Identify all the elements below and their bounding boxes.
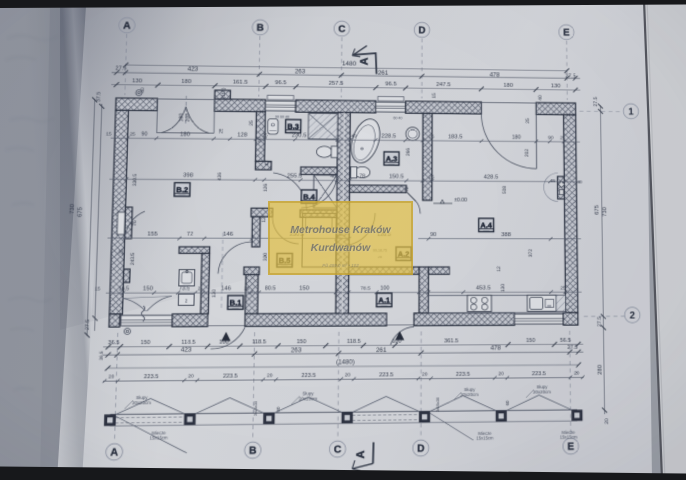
svg-text:146: 146 xyxy=(221,286,232,292)
svg-text:——: —— xyxy=(381,303,388,307)
svg-text:60: 60 xyxy=(257,137,262,142)
svg-text:255.5: 255.5 xyxy=(287,174,303,180)
svg-text:78: 78 xyxy=(359,174,365,180)
svg-text:25: 25 xyxy=(249,120,255,126)
svg-text:15x15cm: 15x15cm xyxy=(476,435,494,440)
svg-text:223.5: 223.5 xyxy=(223,373,238,379)
svg-text:——: —— xyxy=(483,228,490,232)
svg-text:20: 20 xyxy=(498,371,504,377)
svg-text:72: 72 xyxy=(187,232,193,238)
svg-text:3x15x30: 3x15x30 xyxy=(436,397,440,412)
svg-text:155: 155 xyxy=(147,232,158,238)
svg-text:223.5: 223.5 xyxy=(456,372,470,378)
svg-text:202: 202 xyxy=(524,149,530,157)
svg-text:730: 730 xyxy=(602,206,608,216)
svg-text:25: 25 xyxy=(429,174,435,180)
svg-text:130: 130 xyxy=(211,289,217,298)
svg-text:25: 25 xyxy=(525,118,531,124)
svg-text:118.5: 118.5 xyxy=(252,339,266,345)
svg-text:330.5: 330.5 xyxy=(132,174,139,187)
svg-text:90: 90 xyxy=(430,232,436,238)
svg-text:B: B xyxy=(256,23,263,34)
svg-text:20: 20 xyxy=(574,371,580,377)
svg-text:20x20cm: 20x20cm xyxy=(461,392,479,397)
svg-text:675: 675 xyxy=(77,206,84,217)
svg-text:228.5: 228.5 xyxy=(381,134,396,140)
svg-text:230.5: 230.5 xyxy=(292,133,308,139)
svg-text:90 60 40: 90 60 40 xyxy=(275,115,289,119)
svg-text:257.5: 257.5 xyxy=(329,81,344,87)
svg-text:25: 25 xyxy=(130,132,136,138)
svg-text:20x20cm: 20x20cm xyxy=(533,389,551,394)
svg-text:40: 40 xyxy=(351,134,357,140)
svg-text:263: 263 xyxy=(291,347,302,354)
svg-text:398: 398 xyxy=(183,173,194,179)
svg-text:243.5: 243.5 xyxy=(130,252,137,265)
svg-text:361.5: 361.5 xyxy=(444,338,458,344)
svg-text:C: C xyxy=(334,445,342,456)
svg-text:20: 20 xyxy=(345,372,351,378)
svg-text:E: E xyxy=(563,28,570,38)
svg-text:78.5: 78.5 xyxy=(360,286,370,292)
svg-text:25: 25 xyxy=(560,286,566,291)
svg-text:20: 20 xyxy=(422,372,428,378)
svg-text:372: 372 xyxy=(528,249,534,257)
svg-text:126: 126 xyxy=(263,183,269,191)
svg-text:16.5: 16.5 xyxy=(118,286,129,292)
svg-text:1: 1 xyxy=(628,107,634,117)
svg-text:150: 150 xyxy=(526,338,535,344)
svg-text:25: 25 xyxy=(244,286,250,291)
svg-text:27.5: 27.5 xyxy=(597,316,603,326)
svg-text:128: 128 xyxy=(237,133,248,139)
svg-text:161.5: 161.5 xyxy=(233,80,249,86)
svg-text:3x15x30: 3x15x30 xyxy=(254,401,258,416)
svg-text:150.5: 150.5 xyxy=(389,174,404,180)
svg-text:90: 90 xyxy=(141,132,147,138)
svg-text:25: 25 xyxy=(560,135,565,140)
svg-text:130: 130 xyxy=(132,78,143,84)
svg-text:2: 2 xyxy=(630,311,636,322)
svg-text:——: —— xyxy=(388,162,395,166)
svg-text:A: A xyxy=(355,450,367,458)
svg-text:——: —— xyxy=(179,193,186,197)
svg-text:180: 180 xyxy=(503,83,513,89)
svg-text:15x15cm: 15x15cm xyxy=(560,435,578,440)
svg-text:37.5: 37.5 xyxy=(96,92,102,102)
svg-text:266: 266 xyxy=(406,148,412,156)
svg-text:20: 20 xyxy=(267,373,273,379)
svg-text:A: A xyxy=(123,21,131,32)
svg-text:180: 180 xyxy=(181,79,192,85)
svg-text:36.5: 36.5 xyxy=(108,340,120,346)
svg-text:25: 25 xyxy=(262,133,268,139)
svg-text:36.5: 36.5 xyxy=(99,351,105,361)
svg-text:73.5: 73.5 xyxy=(179,286,190,292)
svg-text:247.5: 247.5 xyxy=(436,82,451,88)
svg-text:423: 423 xyxy=(181,347,193,354)
svg-text:146: 146 xyxy=(223,232,234,238)
svg-text:118.5: 118.5 xyxy=(347,339,361,345)
svg-text:25: 25 xyxy=(119,249,125,255)
svg-text:96.5: 96.5 xyxy=(385,82,397,88)
svg-text:388: 388 xyxy=(501,232,511,238)
svg-text:(1480): (1480) xyxy=(336,359,354,366)
svg-text:A: A xyxy=(110,447,119,459)
svg-text:223.5: 223.5 xyxy=(379,372,393,378)
svg-text:100: 100 xyxy=(219,339,229,345)
svg-text:150: 150 xyxy=(140,340,150,346)
svg-text:20: 20 xyxy=(108,374,114,380)
svg-text:15: 15 xyxy=(432,93,438,99)
svg-text:150: 150 xyxy=(299,286,310,292)
svg-text:20: 20 xyxy=(604,418,610,424)
svg-text:100: 100 xyxy=(392,338,402,344)
svg-text:E: E xyxy=(567,442,574,453)
svg-text:40: 40 xyxy=(140,87,146,93)
svg-text:40: 40 xyxy=(577,180,582,185)
svg-text:118.5: 118.5 xyxy=(181,340,195,346)
svg-text:27.5: 27.5 xyxy=(85,319,92,330)
svg-text:261: 261 xyxy=(376,347,387,354)
svg-text:27.5: 27.5 xyxy=(567,345,577,351)
svg-text:27.5: 27.5 xyxy=(565,74,576,80)
svg-text:12: 12 xyxy=(261,217,267,223)
svg-text:C: C xyxy=(338,24,346,35)
svg-text:428.5: 428.5 xyxy=(484,175,499,181)
svg-text:478: 478 xyxy=(490,345,501,352)
svg-text:25: 25 xyxy=(429,134,435,140)
svg-text:730: 730 xyxy=(70,203,77,214)
svg-text:80.5: 80.5 xyxy=(265,286,276,292)
svg-text:675: 675 xyxy=(594,204,600,214)
svg-text:60 40: 60 40 xyxy=(393,116,402,120)
svg-text:56.5: 56.5 xyxy=(560,338,571,344)
svg-text:27.5: 27.5 xyxy=(115,66,126,72)
svg-text:200: 200 xyxy=(185,113,191,122)
svg-text:20: 20 xyxy=(188,373,194,379)
svg-text:130: 130 xyxy=(551,84,561,90)
svg-text:478: 478 xyxy=(489,72,500,79)
svg-text:(115): (115) xyxy=(221,87,227,98)
svg-text:——: —— xyxy=(232,306,239,310)
svg-text:96.5: 96.5 xyxy=(275,80,287,86)
svg-text:1480: 1480 xyxy=(342,61,357,68)
svg-text:40: 40 xyxy=(330,174,336,180)
svg-text:76: 76 xyxy=(132,220,138,226)
svg-text:15x15cm: 15x15cm xyxy=(150,435,169,440)
svg-text:223.5: 223.5 xyxy=(144,374,159,380)
svg-text:60: 60 xyxy=(276,406,281,412)
svg-text:88: 88 xyxy=(547,304,551,308)
svg-text:±0.00: ±0.00 xyxy=(454,198,467,204)
svg-text:180: 180 xyxy=(512,135,521,141)
svg-text:72: 72 xyxy=(404,186,410,192)
svg-text:508: 508 xyxy=(502,186,508,194)
svg-text:223.5: 223.5 xyxy=(532,371,546,377)
svg-text:261: 261 xyxy=(378,70,389,77)
svg-text:20x20cm: 20x20cm xyxy=(299,396,318,401)
svg-text:25: 25 xyxy=(551,178,556,183)
svg-text:20x20cm: 20x20cm xyxy=(132,400,151,405)
svg-text:130: 130 xyxy=(500,284,506,292)
svg-text:183.5: 183.5 xyxy=(448,134,463,140)
svg-text:453.5: 453.5 xyxy=(476,286,491,292)
svg-text:280: 280 xyxy=(598,364,604,375)
svg-text:15: 15 xyxy=(95,286,101,291)
svg-text:180: 180 xyxy=(179,113,185,122)
svg-text:223.5: 223.5 xyxy=(301,373,316,379)
svg-text:D: D xyxy=(418,26,425,37)
svg-text:90: 90 xyxy=(548,135,554,141)
svg-text:423: 423 xyxy=(187,66,198,73)
svg-text:150: 150 xyxy=(297,339,307,345)
svg-text:180: 180 xyxy=(180,132,191,138)
svg-text:436: 436 xyxy=(217,172,223,180)
svg-text:60: 60 xyxy=(505,400,510,406)
svg-text:40: 40 xyxy=(538,95,544,101)
svg-text:12: 12 xyxy=(264,160,270,166)
svg-text:100: 100 xyxy=(380,286,389,292)
svg-text:12: 12 xyxy=(496,266,502,272)
svg-text:D: D xyxy=(417,444,424,455)
svg-text:A: A xyxy=(359,57,371,65)
svg-text:263: 263 xyxy=(295,68,306,75)
svg-text:25: 25 xyxy=(218,128,224,134)
svg-text:150: 150 xyxy=(143,286,154,292)
svg-text:15: 15 xyxy=(106,131,112,137)
svg-text:27.5: 27.5 xyxy=(593,97,599,107)
svg-text:B: B xyxy=(249,446,257,457)
